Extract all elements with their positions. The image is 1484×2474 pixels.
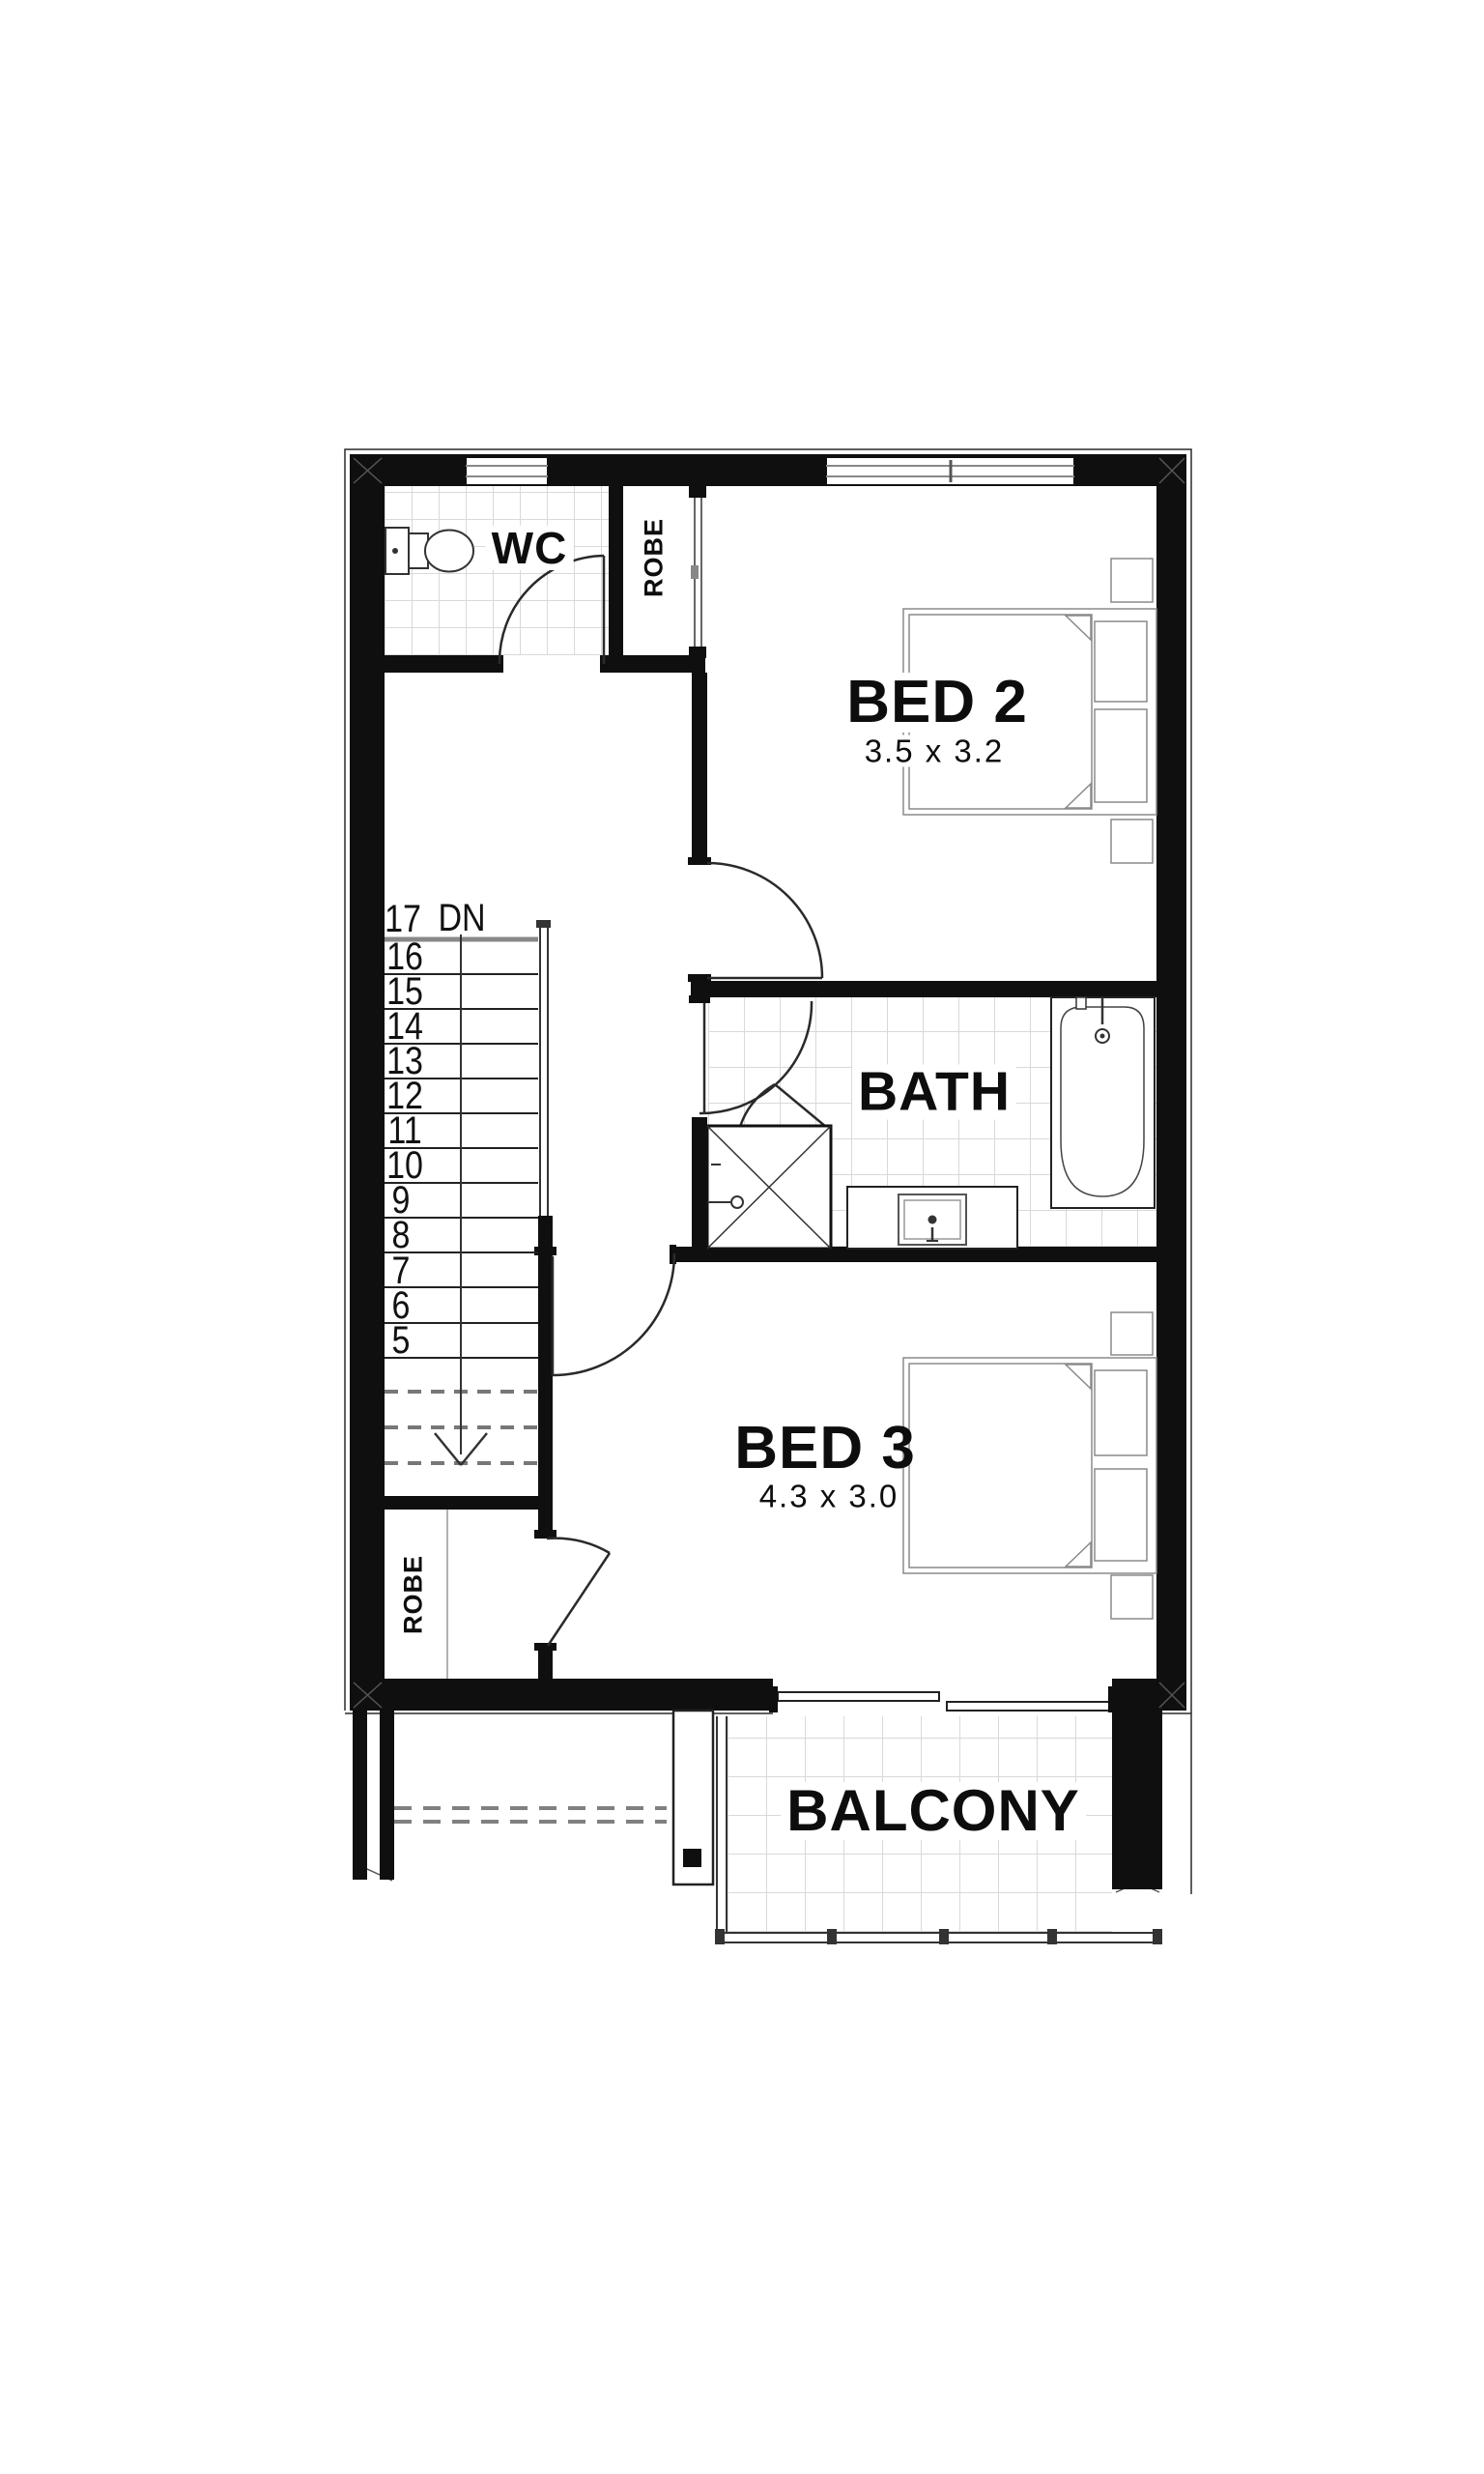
robe-bottom-door — [547, 1539, 610, 1646]
room-label-bed3: BED 3 — [728, 1419, 922, 1479]
stair-top-step-label: 17 — [385, 900, 421, 938]
room-label-robe-bottom: ROBE — [401, 1549, 427, 1640]
floorplan-canvas: WC ROBE BED 2 3.5 x 3.2 BATH BED 3 4.3 x… — [0, 0, 1484, 2474]
bed3-door — [553, 1253, 674, 1375]
balcony-sliding-door — [769, 1686, 1117, 1712]
stair-number: 8 — [392, 1216, 411, 1254]
shower-door — [740, 1084, 826, 1127]
bed3-furniture — [903, 1312, 1156, 1619]
stair-number: 5 — [392, 1321, 411, 1360]
bathtub — [1051, 997, 1155, 1208]
floorplan-linework — [0, 0, 1484, 2474]
shower — [707, 1126, 831, 1249]
room-label-balcony: BALCONY — [781, 1782, 1086, 1840]
room-label-bath: BATH — [852, 1065, 1016, 1120]
toilet — [385, 528, 473, 574]
stair-direction-arrow — [435, 935, 487, 1465]
stair-direction-label: DN — [438, 899, 485, 937]
bath-fixtures — [707, 997, 1155, 1249]
stair-handrail — [536, 920, 551, 1216]
bed2-door — [707, 863, 822, 978]
wc-window — [466, 457, 548, 485]
room-label-wc: WC — [486, 526, 574, 570]
room-dims-bed3: 4.3 x 3.0 — [756, 1481, 903, 1512]
room-dims-bed2: 3.5 x 3.2 — [861, 735, 1009, 767]
robe-top-slider — [689, 486, 706, 658]
room-label-bed2: BED 2 — [841, 673, 1034, 733]
room-label-robe-top: ROBE — [642, 512, 668, 603]
vanity — [847, 1187, 1017, 1249]
bath-door — [699, 1001, 812, 1113]
bed2-window — [826, 457, 1074, 485]
